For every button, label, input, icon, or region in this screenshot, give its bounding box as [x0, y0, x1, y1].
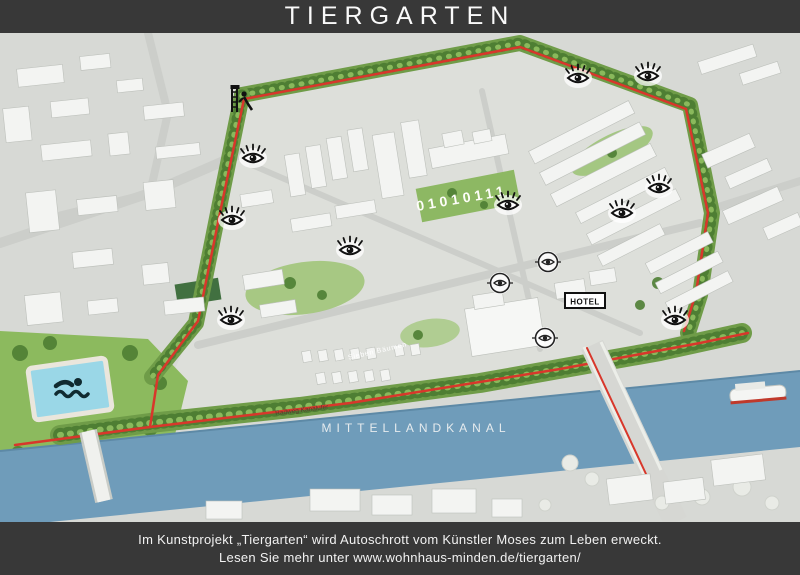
map-canvas: MITTELLANDKANAL 01010111 HOTEL Radweg Ka…: [0, 33, 800, 522]
map-area: MITTELLANDKANAL 01010111 HOTEL Radweg Ka…: [0, 33, 800, 522]
hotel-label-text: HOTEL: [570, 298, 600, 307]
swimming-pool: [28, 358, 112, 420]
caption-line2: Lesen Sie mehr unter www.wohnhaus-minden…: [219, 550, 581, 565]
title-bar: TIERGARTEN: [0, 0, 800, 33]
caption-bar: Im Kunstprojekt „Tiergarten“ wird Autosc…: [0, 522, 800, 575]
poster: TIERGARTEN: [0, 0, 800, 575]
page-title: TIERGARTEN: [285, 2, 516, 31]
caption-line1: Im Kunstprojekt „Tiergarten“ wird Autosc…: [138, 532, 662, 547]
hotel-label: HOTEL: [565, 293, 605, 308]
canal-label: MITTELLANDKANAL: [321, 421, 510, 435]
